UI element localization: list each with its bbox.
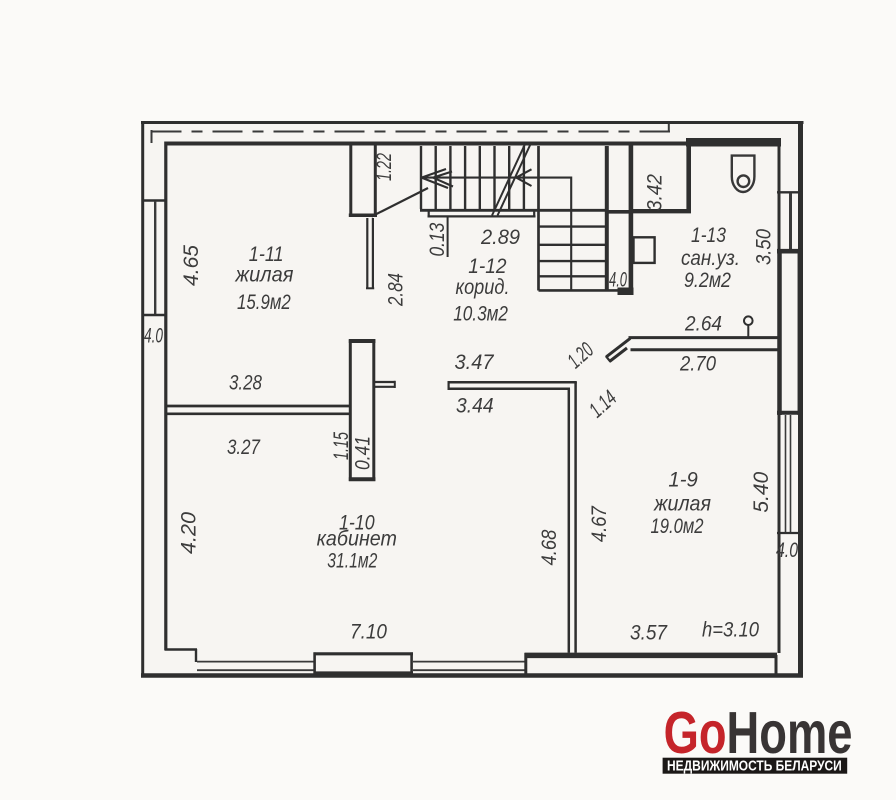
svg-text:2.89: 2.89 bbox=[480, 225, 520, 249]
svg-text:2.70: 2.70 bbox=[679, 352, 716, 376]
svg-text:0.13: 0.13 bbox=[425, 223, 449, 257]
svg-text:2.84: 2.84 bbox=[383, 273, 407, 307]
svg-text:3.57: 3.57 bbox=[630, 621, 668, 645]
svg-text:3.44: 3.44 bbox=[456, 394, 494, 418]
svg-text:4.0: 4.0 bbox=[776, 538, 798, 562]
svg-text:4.20: 4.20 bbox=[176, 512, 200, 554]
svg-text:сан.уз.: сан.уз. bbox=[681, 246, 740, 270]
svg-text:жилая: жилая bbox=[653, 491, 711, 515]
svg-text:9.2м2: 9.2м2 bbox=[684, 268, 731, 292]
svg-text:1.22: 1.22 bbox=[372, 153, 396, 181]
svg-text:3.28: 3.28 bbox=[229, 370, 262, 394]
svg-text:3.50: 3.50 bbox=[751, 229, 775, 265]
svg-text:4.68: 4.68 bbox=[537, 530, 561, 566]
svg-text:31.1м2: 31.1м2 bbox=[327, 549, 377, 573]
svg-text:15.9м2: 15.9м2 bbox=[237, 290, 291, 314]
svg-text:НЕДВИЖИМОСТЬ БЕЛАРУСИ: НЕДВИЖИМОСТЬ БЕЛАРУСИ bbox=[667, 757, 842, 773]
svg-text:4.0: 4.0 bbox=[609, 268, 627, 292]
svg-text:3.47: 3.47 bbox=[455, 350, 495, 374]
svg-text:7.10: 7.10 bbox=[350, 620, 387, 644]
svg-text:1.15: 1.15 bbox=[329, 431, 353, 460]
svg-text:4.67: 4.67 bbox=[587, 505, 611, 542]
svg-text:жилая: жилая bbox=[234, 262, 293, 286]
svg-text:4.0: 4.0 bbox=[144, 324, 163, 348]
svg-text:4.65: 4.65 bbox=[179, 244, 203, 286]
svg-text:h=3.10: h=3.10 bbox=[702, 618, 759, 642]
svg-text:2.64: 2.64 bbox=[684, 312, 722, 336]
svg-text:3.27: 3.27 bbox=[227, 435, 261, 459]
svg-text:5.40: 5.40 bbox=[749, 472, 773, 513]
svg-text:0.41: 0.41 bbox=[350, 436, 374, 470]
svg-text:1-9: 1-9 bbox=[668, 468, 697, 492]
svg-text:19.0м2: 19.0м2 bbox=[650, 514, 703, 538]
svg-text:кабинет: кабинет bbox=[317, 527, 397, 551]
svg-text:10.3м2: 10.3м2 bbox=[453, 301, 508, 325]
svg-text:1-13: 1-13 bbox=[691, 223, 726, 247]
svg-text:3.42: 3.42 bbox=[642, 174, 666, 211]
svg-text:корид.: корид. bbox=[456, 275, 510, 299]
